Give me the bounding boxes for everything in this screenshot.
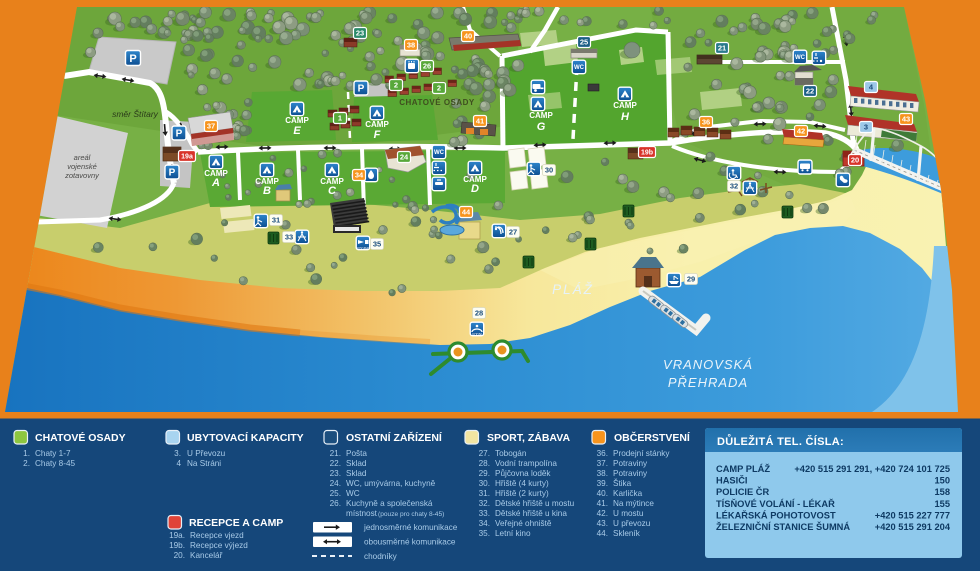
svg-text:CAMP: CAMP (613, 101, 637, 110)
svg-text:Recepce výjezd: Recepce výjezd (190, 541, 248, 550)
svg-text:C: C (328, 185, 337, 197)
svg-text:25: 25 (580, 38, 588, 47)
svg-text:41.: 41. (597, 499, 608, 508)
svg-text:WC: WC (434, 150, 445, 156)
svg-text:21.: 21. (330, 449, 341, 458)
svg-text:DŮLEŽITÁ TEL. ČÍSLA:: DŮLEŽITÁ TEL. ČÍSLA: (717, 434, 844, 448)
svg-text:Prodejní stánky: Prodejní stánky (613, 449, 670, 458)
svg-text:E: E (293, 125, 301, 137)
svg-text:155: 155 (934, 499, 950, 509)
svg-text:jednosměrné komunikace: jednosměrné komunikace (363, 523, 458, 532)
svg-text:Dětské hřiště u mostu: Dětské hřiště u mostu (495, 499, 575, 508)
svg-text:3.: 3. (174, 449, 181, 458)
svg-text:SPORT, ZÁBAVA: SPORT, ZÁBAVA (487, 431, 570, 444)
svg-text:F: F (374, 129, 381, 141)
svg-text:33: 33 (285, 233, 293, 242)
svg-text:1: 1 (338, 114, 342, 123)
svg-text:158: 158 (934, 487, 950, 497)
svg-text:32: 32 (730, 182, 738, 191)
svg-text:40.: 40. (597, 489, 608, 498)
svg-text:+420 515 291 204: +420 515 291 204 (875, 522, 951, 532)
svg-text:chodníky: chodníky (364, 552, 398, 561)
svg-text:+420 515 291 291, +420 724 101: +420 515 291 291, +420 724 101 725 (794, 464, 950, 474)
svg-text:42.: 42. (597, 509, 608, 518)
svg-text:WC, umývárna, kuchyně: WC, umývárna, kuchyně (346, 479, 436, 488)
svg-text:35: 35 (373, 240, 381, 249)
svg-text:19a.: 19a. (169, 531, 185, 540)
svg-text:Půjčovna loděk: Půjčovna loděk (495, 468, 551, 478)
svg-text:G: G (537, 121, 546, 133)
svg-text:CAMP PLÁŽ: CAMP PLÁŽ (716, 463, 770, 474)
svg-text:H: H (621, 111, 630, 123)
svg-text:PŘEHRADA: PŘEHRADA (668, 375, 748, 390)
svg-text:Pošta: Pošta (346, 449, 367, 458)
svg-text:Hřiště (2 kurty): Hřiště (2 kurty) (495, 489, 549, 498)
svg-text:OBČERSTVENÍ: OBČERSTVENÍ (614, 431, 691, 444)
svg-text:20.: 20. (174, 551, 185, 560)
svg-text:Potraviny: Potraviny (613, 459, 648, 468)
svg-text:P: P (176, 129, 183, 140)
svg-text:D: D (471, 183, 479, 195)
svg-text:33.: 33. (479, 509, 490, 518)
svg-text:Recepce vjezd: Recepce vjezd (190, 531, 244, 540)
svg-text:místnost: místnost (346, 509, 378, 518)
svg-text:31.: 31. (479, 489, 490, 498)
svg-text:areál: areál (74, 153, 91, 162)
svg-text:38: 38 (407, 41, 415, 50)
svg-text:42: 42 (797, 127, 805, 136)
svg-text:29.: 29. (479, 469, 490, 478)
svg-text:obousměrné komunikace: obousměrné komunikace (364, 538, 456, 547)
svg-text:PLÁŽ: PLÁŽ (552, 282, 594, 297)
svg-text:WC: WC (574, 65, 585, 71)
svg-text:TÍSŇOVÉ VOLÁNÍ - LÉKAŘ: TÍSŇOVÉ VOLÁNÍ - LÉKAŘ (716, 498, 835, 509)
svg-text:VODNI: VODNI (472, 333, 482, 337)
svg-text:Kancelář: Kancelář (190, 551, 223, 560)
svg-text:ŽELEZNIČNÍ STANICE ŠUMNÁ: ŽELEZNIČNÍ STANICE ŠUMNÁ (716, 521, 850, 532)
svg-text:Dětské hřiště u kina: Dětské hřiště u kina (495, 509, 567, 518)
svg-text:22: 22 (806, 87, 814, 96)
svg-text:Sklad: Sklad (346, 469, 367, 478)
svg-text:2: 2 (437, 84, 441, 93)
svg-text:44: 44 (462, 208, 471, 217)
svg-text:CAMP: CAMP (529, 111, 553, 120)
svg-text:2: 2 (394, 81, 398, 90)
svg-text:zotavovny: zotavovny (64, 171, 100, 180)
svg-text:26.: 26. (330, 499, 341, 508)
svg-text:Kuchyně a společenská: Kuchyně a společenská (346, 499, 433, 508)
svg-text:Sklad: Sklad (346, 459, 367, 468)
svg-text:1.: 1. (23, 449, 30, 458)
svg-text:RECEPCE A CAMP: RECEPCE A CAMP (189, 517, 283, 529)
svg-text:44.: 44. (597, 529, 608, 538)
svg-text:22.: 22. (330, 459, 341, 468)
svg-text:WC: WC (346, 489, 360, 498)
svg-text:+420 515 227 777: +420 515 227 777 (875, 510, 950, 520)
svg-text:vojenské: vojenské (67, 162, 97, 171)
svg-text:150: 150 (934, 476, 950, 486)
svg-text:41: 41 (476, 117, 484, 126)
svg-text:38.: 38. (597, 469, 608, 478)
svg-text:43.: 43. (597, 519, 608, 528)
svg-text:20: 20 (851, 156, 859, 165)
svg-text:CHATOVÉ OSADY: CHATOVÉ OSADY (399, 98, 475, 107)
svg-text:WC: WC (795, 55, 806, 61)
svg-text:CAMP: CAMP (365, 120, 389, 129)
svg-text:směr Štítary: směr Štítary (112, 109, 159, 119)
svg-text:39.: 39. (597, 479, 608, 488)
svg-text:36.: 36. (597, 449, 608, 458)
svg-text:43: 43 (902, 115, 910, 124)
svg-text:P: P (129, 53, 136, 65)
svg-text:37: 37 (207, 122, 215, 131)
svg-text:Hřiště (4 kurty): Hřiště (4 kurty) (495, 479, 549, 488)
svg-text:27.: 27. (479, 449, 490, 458)
svg-text:Na Stráni: Na Stráni (187, 459, 221, 468)
svg-text:21: 21 (718, 44, 726, 53)
svg-text:Veřejné ohniště: Veřejné ohniště (495, 519, 552, 528)
svg-text:BIOGRAF: BIOGRAF (356, 247, 370, 251)
svg-text:23: 23 (356, 29, 364, 38)
svg-text:29: 29 (687, 275, 695, 284)
svg-text:Vodní trampolína: Vodní trampolína (495, 459, 557, 468)
svg-text:32.: 32. (479, 499, 490, 508)
svg-text:OSTATNÍ ZAŘÍZENÍ: OSTATNÍ ZAŘÍZENÍ (346, 431, 443, 444)
svg-text:28.: 28. (479, 459, 490, 468)
svg-text:34.: 34. (479, 519, 490, 528)
svg-text:Potraviny: Potraviny (613, 469, 648, 478)
svg-text:34: 34 (355, 171, 364, 180)
svg-text:P: P (169, 168, 176, 179)
svg-text:(pouze pro chaty 8-45): (pouze pro chaty 8-45) (378, 511, 444, 518)
svg-text:Štika: Štika (613, 478, 632, 488)
svg-text:Tobogán: Tobogán (495, 449, 527, 458)
svg-text:Chaty 8-45: Chaty 8-45 (35, 459, 75, 468)
svg-text:4: 4 (176, 459, 181, 468)
svg-text:27: 27 (509, 228, 517, 237)
svg-text:19b: 19b (641, 150, 653, 157)
svg-text:30: 30 (545, 166, 553, 175)
svg-text:19a: 19a (181, 154, 193, 161)
svg-text:24.: 24. (330, 479, 341, 488)
svg-text:2.: 2. (23, 459, 30, 468)
svg-text:HASIČI: HASIČI (716, 475, 748, 486)
svg-text:Chaty 1-7: Chaty 1-7 (35, 449, 71, 458)
svg-text:23.: 23. (330, 469, 341, 478)
svg-text:40: 40 (464, 32, 472, 41)
svg-text:P: P (358, 84, 365, 95)
svg-text:POLICIE ČR: POLICIE ČR (716, 486, 769, 497)
svg-text:24: 24 (400, 153, 409, 162)
svg-text:36: 36 (702, 118, 710, 127)
svg-text:LÉKAŘSKÁ POHOTOVOST: LÉKAŘSKÁ POHOTOVOST (716, 509, 836, 520)
svg-text:CHATOVÉ OSADY: CHATOVÉ OSADY (35, 431, 126, 444)
svg-text:Letní kino: Letní kino (495, 529, 531, 538)
svg-text:30.: 30. (479, 479, 490, 488)
svg-text:VRANOVSKÁ: VRANOVSKÁ (663, 357, 753, 372)
svg-text:19b.: 19b. (169, 541, 185, 550)
svg-text:Skleník: Skleník (613, 529, 641, 538)
svg-text:3: 3 (864, 123, 868, 132)
svg-text:Na mýtince: Na mýtince (613, 499, 654, 508)
svg-text:UBYTOVACÍ KAPACITY: UBYTOVACÍ KAPACITY (187, 431, 304, 444)
svg-text:A: A (211, 177, 220, 189)
svg-text:U Převozu: U Převozu (187, 449, 226, 458)
svg-text:31: 31 (272, 216, 280, 225)
svg-text:28: 28 (475, 309, 483, 318)
svg-text:CAMP: CAMP (285, 116, 309, 125)
svg-text:Karlička: Karlička (613, 489, 643, 498)
svg-text:26: 26 (423, 62, 431, 71)
svg-text:U mostu: U mostu (613, 509, 644, 518)
svg-text:U převozu: U převozu (613, 519, 651, 528)
svg-text:37.: 37. (597, 459, 608, 468)
svg-text:25.: 25. (330, 489, 341, 498)
svg-text:B: B (263, 185, 271, 197)
svg-text:35.: 35. (479, 529, 490, 538)
